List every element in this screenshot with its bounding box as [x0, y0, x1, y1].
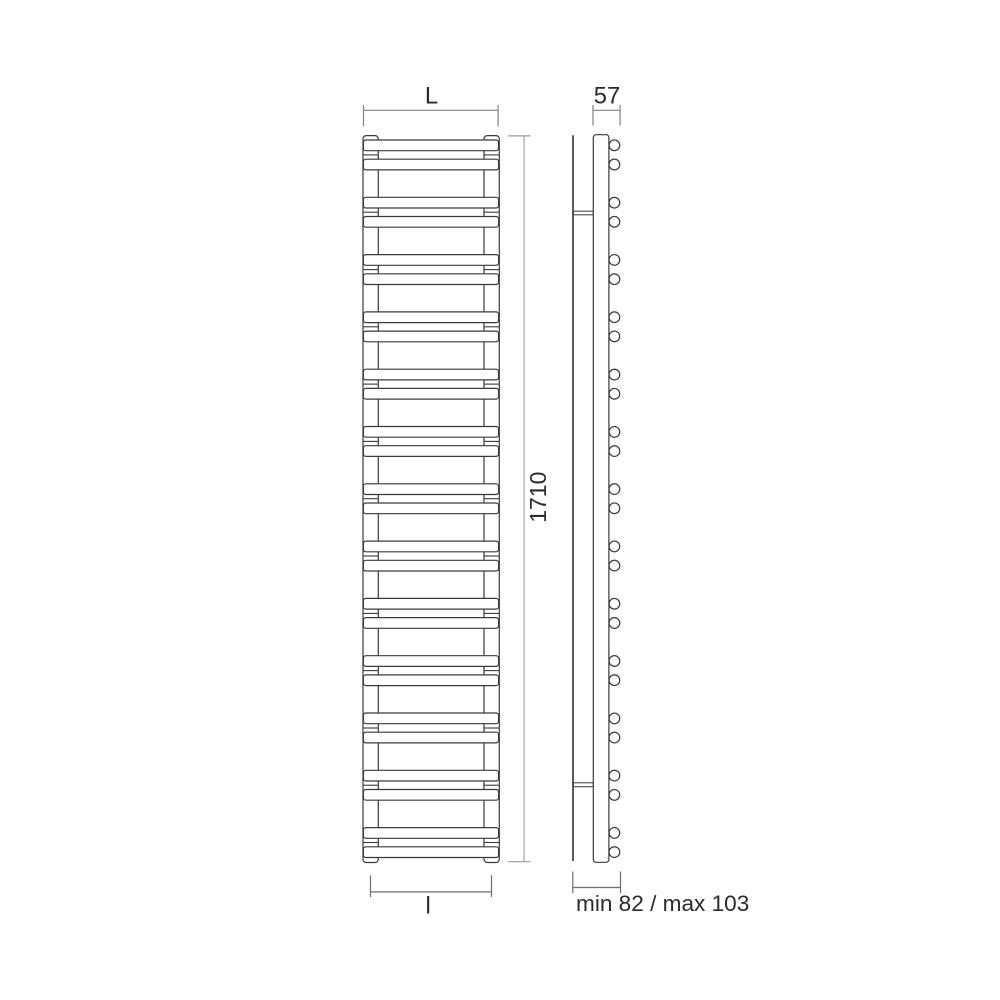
svg-text:min 82 / max 103: min 82 / max 103 — [576, 891, 749, 916]
svg-text:L: L — [425, 83, 438, 110]
svg-text:1710: 1710 — [525, 472, 551, 523]
svg-text:l: l — [426, 893, 431, 920]
svg-text:57: 57 — [594, 83, 620, 110]
